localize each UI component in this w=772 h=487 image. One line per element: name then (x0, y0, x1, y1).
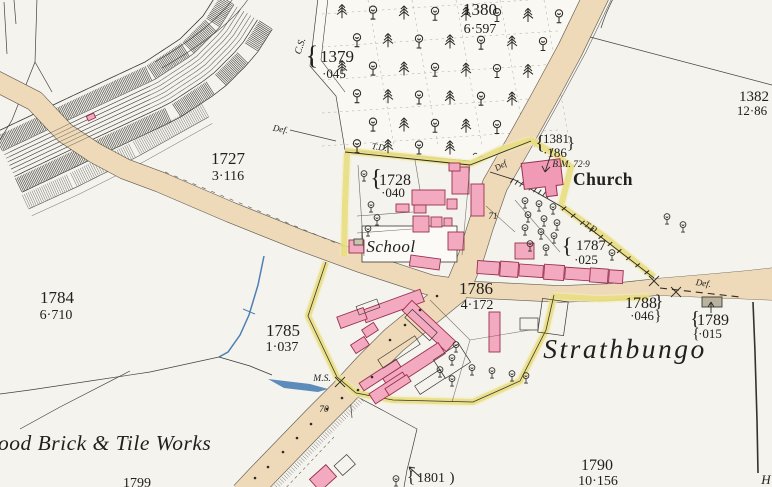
svg-text:71: 71 (489, 211, 498, 221)
svg-text:{: { (370, 166, 382, 192)
svg-text:H: H (760, 472, 771, 487)
svg-text:1784: 1784 (40, 288, 75, 307)
svg-text:·025: ·025 (574, 252, 598, 267)
svg-text:T.D.: T.D. (371, 141, 388, 153)
svg-text:School: School (366, 237, 415, 256)
svg-text:{: { (407, 467, 415, 486)
svg-text:70: 70 (319, 405, 329, 415)
svg-text:·186: ·186 (543, 145, 567, 160)
svg-text:{: { (562, 233, 573, 258)
svg-text:M.S.: M.S. (312, 374, 330, 384)
svg-text:6·597: 6·597 (464, 22, 497, 37)
svg-text:6·710: 6·710 (40, 308, 73, 323)
svg-text:1379: 1379 (320, 47, 354, 66)
svg-text:1·037: 1·037 (266, 340, 299, 355)
svg-text:·046: ·046 (630, 308, 654, 323)
svg-text:Church: Church (573, 169, 633, 189)
svg-text:1801: 1801 (417, 471, 445, 486)
svg-text:Strathbungo: Strathbungo (543, 333, 706, 364)
svg-text:{: { (535, 132, 545, 154)
svg-text:}: } (654, 308, 661, 324)
svg-text:): ) (450, 470, 455, 486)
svg-text:1381: 1381 (543, 131, 569, 146)
svg-text:1785: 1785 (266, 321, 300, 340)
svg-text:1799: 1799 (123, 476, 151, 487)
svg-text:ood Brick & Tile Works: ood Brick & Tile Works (0, 431, 211, 455)
svg-text:1380: 1380 (463, 0, 497, 19)
svg-text:·045: ·045 (322, 66, 346, 81)
svg-text:}: } (567, 133, 575, 152)
svg-text:{: { (306, 41, 318, 70)
svg-text:1786: 1786 (459, 279, 493, 298)
svg-text:·040: ·040 (381, 185, 405, 200)
svg-text:12·86: 12·86 (737, 103, 768, 118)
svg-text:1790: 1790 (581, 457, 613, 474)
svg-text:1727: 1727 (211, 149, 246, 168)
svg-text:4·172: 4·172 (461, 298, 494, 313)
svg-text:10·156: 10·156 (578, 474, 618, 487)
svg-text:3·116: 3·116 (212, 169, 244, 184)
